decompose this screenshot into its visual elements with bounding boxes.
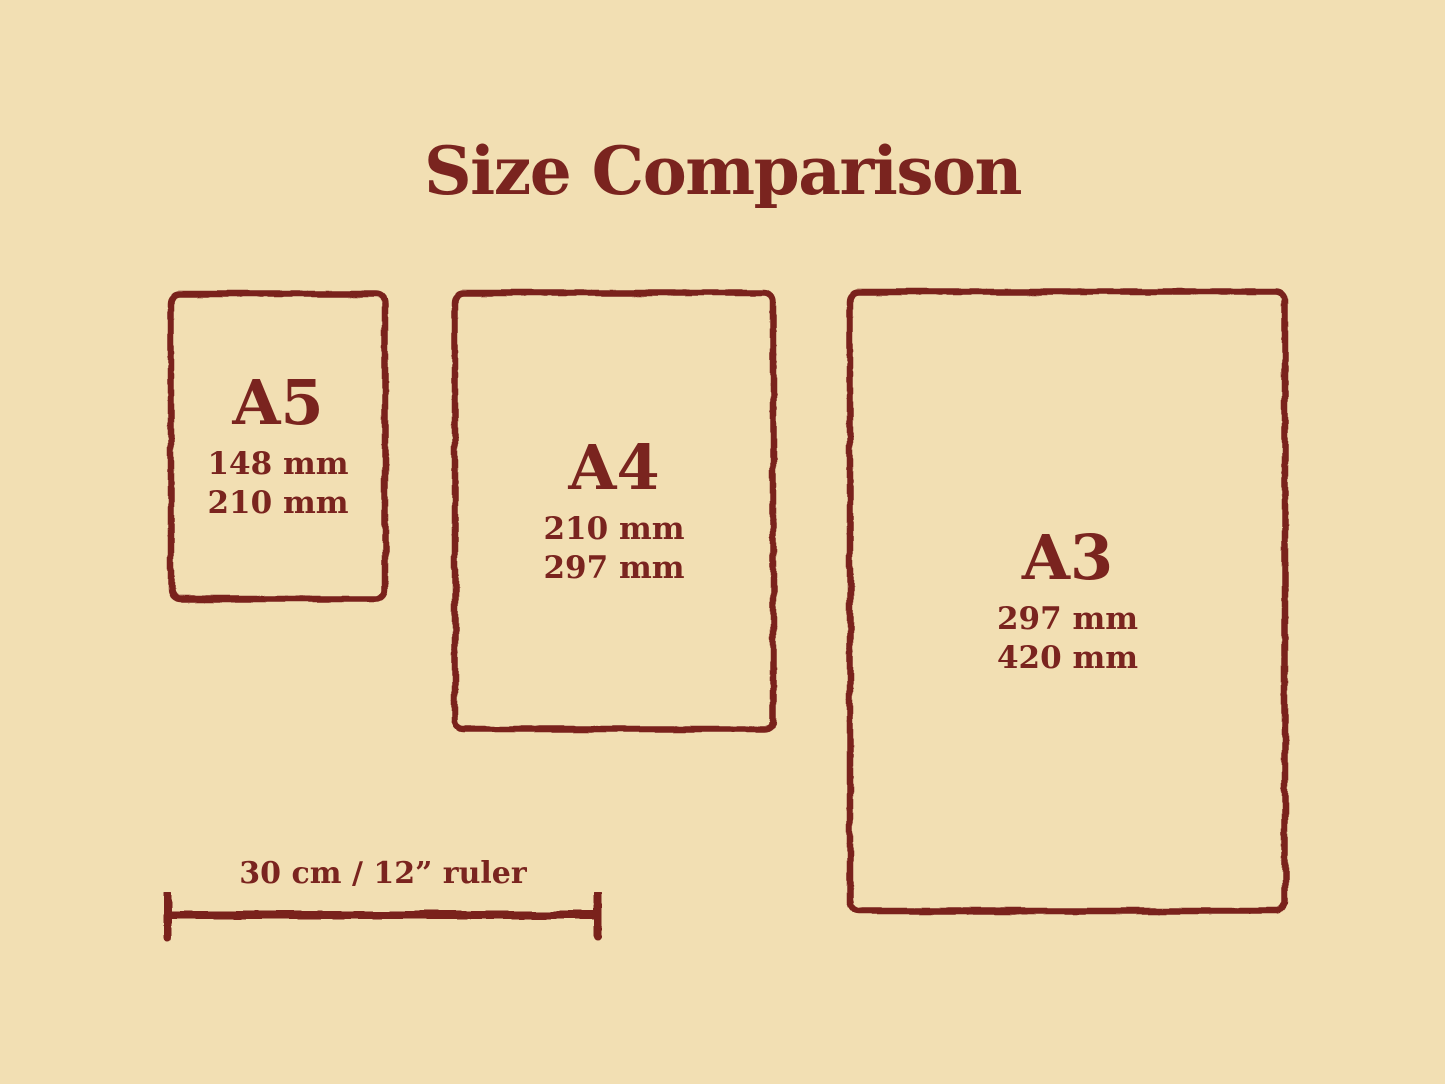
paper-a5-text: A5 148 mm 210 mm <box>207 370 348 523</box>
page-title: Size Comparison <box>0 132 1445 210</box>
paper-box-a3: A3 297 mm 420 mm <box>845 287 1290 916</box>
size-comparison-diagram: Size Comparison A5 148 mm 210 mm A4 210 … <box>0 0 1445 1084</box>
ruler-label: 30 cm / 12” ruler <box>160 856 606 892</box>
paper-a3-text: A3 297 mm 420 mm <box>997 525 1138 678</box>
ruler-line <box>160 892 606 948</box>
paper-box-a5: A5 148 mm 210 mm <box>166 289 390 604</box>
paper-a5-height: 210 mm <box>207 484 348 523</box>
paper-a4-text: A4 210 mm 297 mm <box>543 435 684 588</box>
paper-a5-width: 148 mm <box>207 445 348 484</box>
paper-a3-height: 420 mm <box>997 639 1138 678</box>
paper-a3-name: A3 <box>997 525 1138 590</box>
paper-a4-height: 297 mm <box>543 549 684 588</box>
paper-a5-name: A5 <box>207 370 348 435</box>
paper-a4-name: A4 <box>543 435 684 500</box>
paper-a3-width: 297 mm <box>997 600 1138 639</box>
paper-a4-width: 210 mm <box>543 510 684 549</box>
paper-box-a4: A4 210 mm 297 mm <box>450 288 778 734</box>
ruler: 30 cm / 12” ruler <box>160 856 606 948</box>
